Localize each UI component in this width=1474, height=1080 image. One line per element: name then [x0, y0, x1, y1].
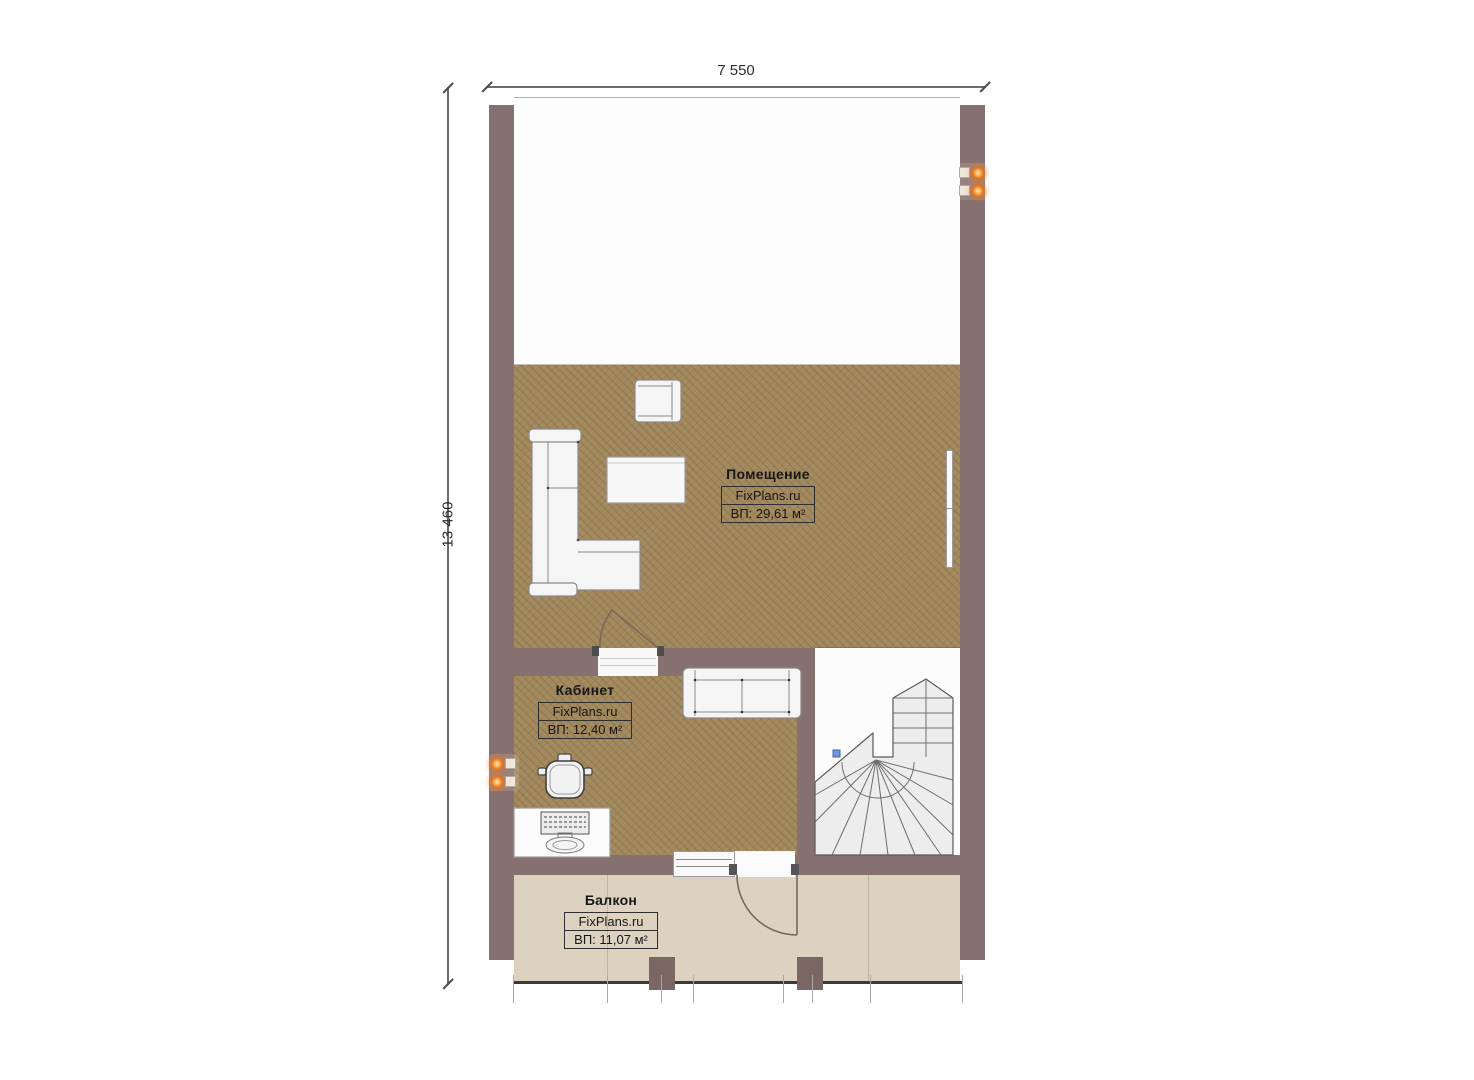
balcony-post: [649, 957, 675, 990]
radiator-divider: [946, 508, 953, 509]
dim-height-label: 13 460: [440, 490, 457, 560]
armchair: [630, 375, 690, 430]
counter-appliance: [510, 803, 615, 863]
power-socket-icon: [959, 185, 983, 196]
staircase: [815, 648, 960, 855]
power-socket-icon: [492, 776, 516, 787]
room-area-text: ВП: 12,40 м²: [539, 721, 632, 738]
power-socket-icon: [959, 167, 983, 178]
room-name: Кабинет: [517, 682, 653, 698]
stair-marker: [833, 750, 840, 757]
upper-room-area: [514, 97, 960, 366]
wall-right: [960, 105, 985, 960]
balcony-post: [797, 957, 823, 990]
office-sofa: [678, 663, 808, 725]
room-label-office: Кабинет FixPlans.ru ВП: 12,40 м²: [517, 682, 653, 739]
wall-balcony-right: [795, 855, 985, 875]
watermark-text: FixPlans.ru: [565, 913, 657, 931]
room-label-balcony: Балкон FixPlans.ru ВП: 11,07 м²: [543, 892, 679, 949]
balcony-glazing-line: [868, 875, 869, 982]
room-area-text: ВП: 11,07 м²: [565, 931, 657, 948]
room-info-box: FixPlans.ru ВП: 12,40 м²: [538, 702, 633, 739]
balcony-railing: [513, 981, 963, 984]
wall-radiator-strip: [946, 450, 953, 568]
room-info-box: FixPlans.ru ВП: 11,07 м²: [564, 912, 658, 949]
balcony-door-swing-arc: [720, 845, 820, 945]
stove-pot: [535, 750, 595, 805]
floor-edge: [514, 364, 960, 365]
wall-socket-group-left: [489, 754, 519, 791]
dim-width-label: 7 550: [686, 62, 786, 79]
coffee-table: [600, 450, 695, 512]
room-name: Помещение: [700, 466, 836, 482]
door-swing-arc: [580, 595, 680, 680]
dim-line-top: [487, 86, 985, 88]
watermark-text: FixPlans.ru: [539, 703, 632, 721]
room-name: Балкон: [543, 892, 679, 908]
floor-plan-canvas: 7 550 13 460: [0, 0, 1474, 1080]
wall-socket-group-right: [956, 163, 986, 200]
room-area-text: ВП: 29,61 м²: [722, 505, 815, 522]
power-socket-icon: [492, 758, 516, 769]
room-label-main: Помещение FixPlans.ru ВП: 29,61 м²: [700, 466, 836, 523]
watermark-text: FixPlans.ru: [722, 487, 815, 505]
room-info-box: FixPlans.ru ВП: 29,61 м²: [721, 486, 816, 523]
